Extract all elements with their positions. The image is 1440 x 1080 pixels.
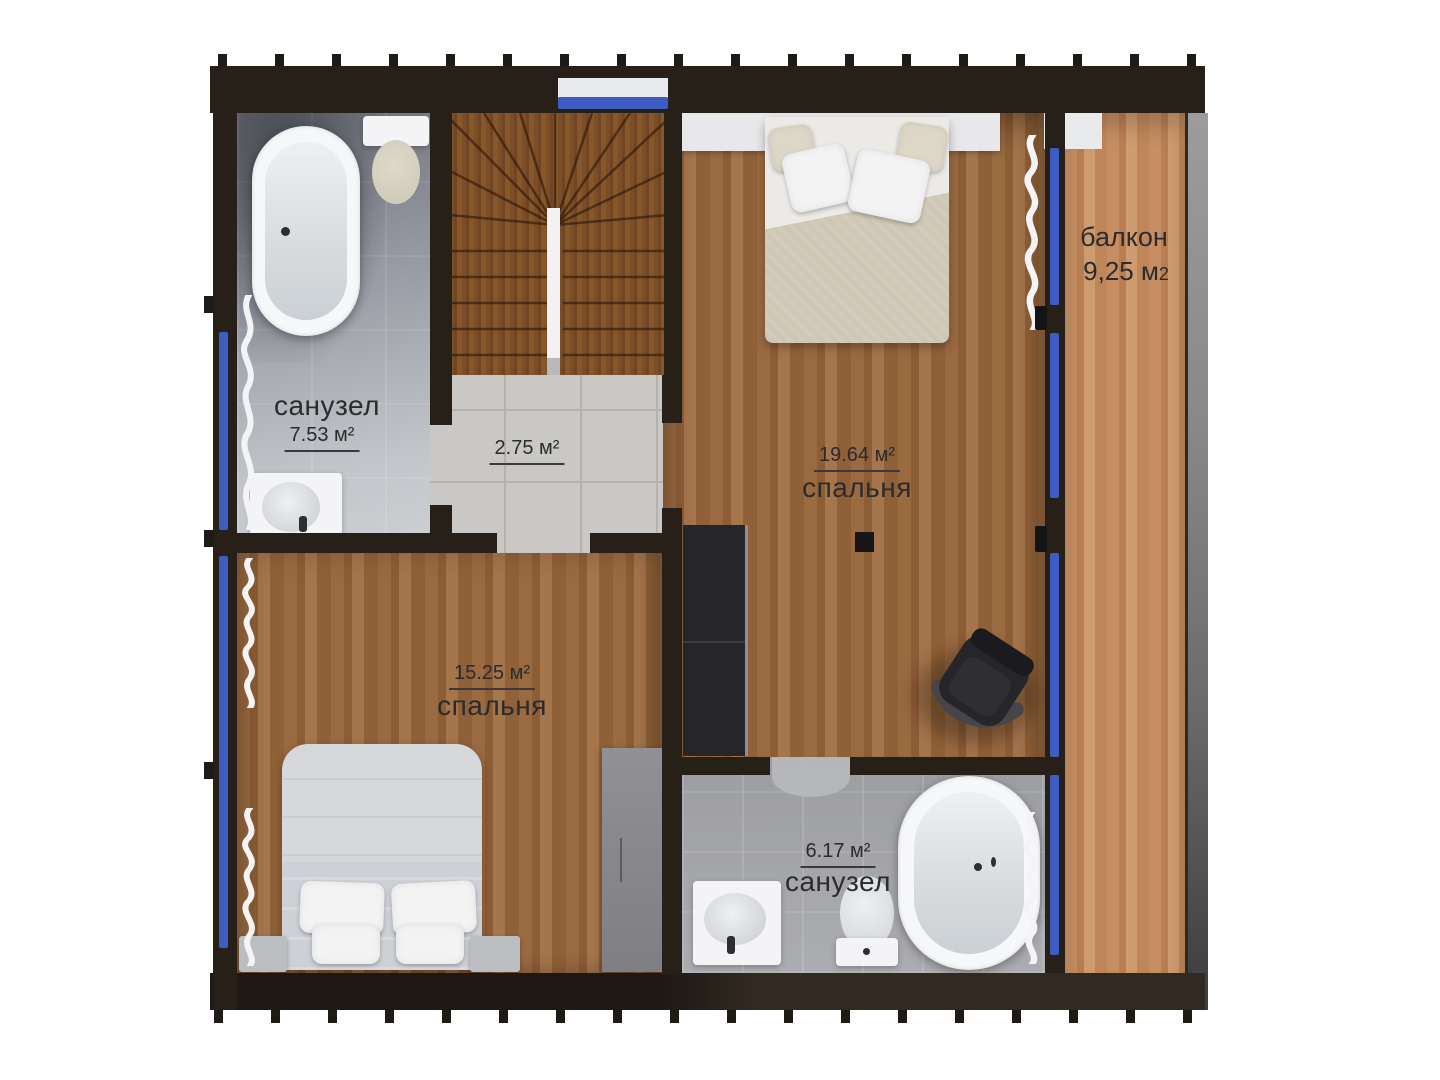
window-glass bbox=[219, 556, 228, 948]
ceiling-light bbox=[855, 532, 874, 552]
bathtub-basin bbox=[265, 142, 347, 320]
curtain bbox=[1020, 812, 1044, 964]
curtain bbox=[238, 295, 260, 530]
pillow bbox=[312, 924, 380, 964]
nightstand-right bbox=[470, 936, 520, 972]
window-glass bbox=[219, 332, 228, 530]
room-area-bathroom-top: 7.53 м² bbox=[285, 424, 360, 452]
office-chair bbox=[912, 612, 1052, 752]
curtain bbox=[239, 558, 261, 708]
curtain bbox=[239, 808, 261, 966]
wall-landing-right-lower bbox=[662, 508, 682, 553]
bathtub-drain bbox=[281, 227, 290, 236]
wall-top bbox=[210, 66, 1205, 113]
room-name-bedroom-second: спальня bbox=[437, 690, 547, 722]
toilet-bowl bbox=[372, 140, 420, 204]
room-area-balcony: 9,25 м2 bbox=[1083, 256, 1169, 287]
floor-plan: санузел 7.53 м² 2.75 м² 19.64 м² спальня… bbox=[0, 0, 1440, 1080]
bathtub-basin bbox=[914, 792, 1024, 954]
window-glass bbox=[1050, 775, 1059, 955]
wall-bath1-right-upper bbox=[430, 113, 452, 425]
staircase-steps bbox=[450, 113, 668, 375]
window-handle bbox=[1035, 526, 1047, 552]
room-name-balcony: балкон bbox=[1080, 222, 1168, 253]
washbasin-faucet bbox=[299, 516, 307, 532]
balcony-concrete-edge bbox=[1185, 113, 1208, 1010]
washbasin bbox=[704, 893, 766, 945]
room-name-bedroom-main: спальня bbox=[802, 472, 912, 504]
wall-landing-right-upper bbox=[662, 375, 682, 423]
window-glass bbox=[1050, 333, 1059, 498]
wall-bedrooms-divider bbox=[662, 553, 682, 975]
door-mat bbox=[772, 757, 850, 797]
pillow bbox=[396, 924, 464, 964]
washbasin bbox=[262, 482, 320, 532]
room-area-bedroom-second: 15.25 м² bbox=[449, 662, 535, 690]
room-area-bedroom-main: 19.64 м² bbox=[814, 444, 900, 472]
window-glass bbox=[1050, 553, 1059, 757]
bathtub-faucet bbox=[974, 863, 982, 871]
wall-bottom bbox=[210, 973, 1205, 1010]
room-area-hall: 2.75 м² bbox=[490, 437, 565, 465]
bathtub-faucet bbox=[991, 857, 996, 867]
room-name-bathroom-bottom: санузел bbox=[785, 866, 891, 898]
toilet-button bbox=[863, 948, 870, 955]
room-name-bathroom-top: санузел bbox=[274, 390, 380, 422]
roof-ticks-bottom bbox=[214, 1010, 1206, 1023]
window-handle bbox=[1035, 306, 1047, 330]
wall-divider-left bbox=[215, 533, 497, 553]
staircase bbox=[450, 113, 668, 375]
curtain bbox=[1021, 135, 1045, 330]
window-glass bbox=[1050, 148, 1059, 305]
wardrobe-second bbox=[602, 748, 662, 972]
window-sill bbox=[558, 78, 668, 98]
wall-bath2-top-left bbox=[682, 757, 770, 775]
room-area-bathroom-bottom: 6.17 м² bbox=[801, 840, 876, 868]
window-glass bbox=[558, 97, 668, 109]
wardrobe-main bbox=[683, 525, 748, 756]
stair-stringer bbox=[547, 208, 560, 358]
wall-stairs-right bbox=[664, 113, 682, 375]
washbasin-faucet bbox=[727, 936, 735, 954]
wall-bath2-top-right bbox=[850, 757, 1045, 775]
